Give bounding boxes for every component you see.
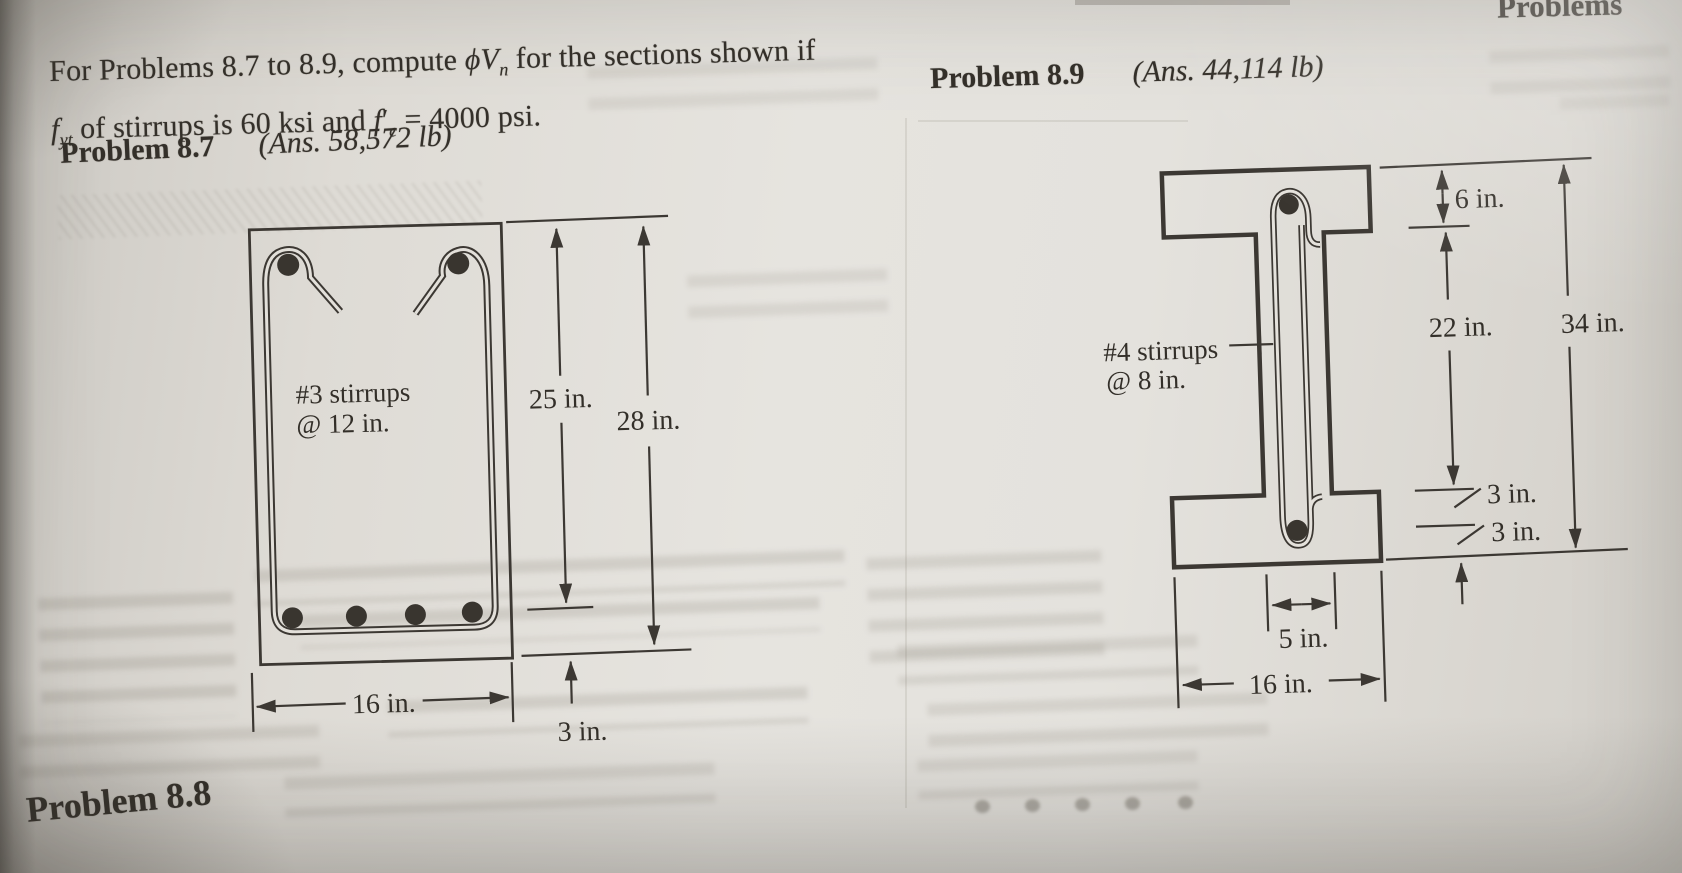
extension-line-top (506, 216, 668, 222)
extension-line-bar-level (1416, 525, 1475, 527)
dim-label-6in: 6 in. (1454, 183, 1505, 216)
extension-line-bottom (521, 649, 691, 655)
bottom-bar (405, 604, 427, 626)
beam-section-8-9 (1162, 167, 1381, 567)
dim-34in-upper (1564, 165, 1568, 296)
stirrup-label-line2: @ 12 in. (296, 407, 390, 439)
running-header-label: Problems (1497, 0, 1623, 25)
extension-line-flange-left (1174, 577, 1178, 708)
bottom-bar (282, 607, 304, 629)
problem-8-8-heading-row: Problem 8.8 (24, 771, 212, 831)
dim-28in-upper (643, 227, 647, 396)
dim-22in-upper (1446, 233, 1448, 300)
dim-16in-left (1183, 683, 1234, 685)
dim-label-22in: 22 in. (1428, 311, 1493, 344)
bottom-bar (462, 601, 484, 623)
dim-22in-lower (1449, 351, 1453, 485)
figure-8-9-labels: #4 stirrups @ 8 in. 6 in. 22 in. 34 in. … (1098, 179, 1636, 705)
dim-25in-upper (556, 229, 560, 376)
phi-vn-symbol: ϕV (464, 42, 499, 76)
top-bar (277, 254, 300, 277)
extension-line-web-right (1334, 572, 1336, 629)
extension-line-flange-right (1381, 571, 1385, 702)
stirrup-label-line2: @ 8 in. (1106, 364, 1187, 396)
dim-label-25in: 25 in. (529, 383, 594, 416)
stirrup-label-line1: #3 stirrups (295, 377, 410, 410)
problem-8-8-label: Problem 8.8 (25, 772, 213, 830)
dim-label-28in: 28 in. (616, 405, 681, 438)
bleed-through-text (1489, 45, 1670, 97)
dimension-lines-8-7 (240, 216, 693, 732)
dim-28in-lower (649, 446, 654, 644)
extension-line-bottom-flange-top (1415, 489, 1474, 491)
dim-label-16in: 16 in. (1249, 668, 1314, 701)
problem-8-9-heading-row: Problem 8.9 (Ans. 44,114 lb) (930, 50, 1324, 96)
figure-problem-8-7: #3 stirrups @ 12 in. 25 in. 28 in. 3 in.… (218, 188, 733, 781)
bleed-through-text (917, 750, 1198, 800)
bleed-through-dot (975, 800, 990, 813)
stirrup-leader-tick (1260, 335, 1261, 354)
dim-16in-right (423, 697, 509, 700)
extension-line-bar-level (527, 607, 593, 610)
extension-line-right (512, 662, 514, 722)
dim-label-34in: 34 in. (1560, 307, 1625, 340)
stirrup-label-line1: #4 stirrups (1103, 334, 1219, 368)
figure-problem-8-9: #4 stirrups @ 8 in. 6 in. 22 in. 34 in. … (1011, 130, 1669, 735)
stirrup-leader-line (1229, 344, 1273, 345)
dim-34in-lower (1569, 347, 1575, 548)
dim-16in-right (1329, 679, 1380, 681)
dim-16in-left (257, 703, 346, 706)
dim-6in-upper (1442, 171, 1443, 194)
intro-line1-text: For Problems 8.7 to 8.9, compute (49, 43, 466, 88)
dim-5in-left (1272, 604, 1301, 605)
bleed-through-text (38, 592, 237, 724)
dim-label-3in-upper: 3 in. (1487, 478, 1538, 511)
running-header: Problems (1497, 0, 1623, 26)
beam-section-8-7 (249, 223, 512, 664)
bottom-bar (346, 605, 368, 627)
bleed-through-text (1560, 94, 1671, 128)
problem-8-7-label: Problem 8.7 (59, 130, 215, 170)
bleed-through-dot (1125, 797, 1140, 810)
extension-line-flange-bottom (1409, 226, 1470, 228)
bleed-through-dot (1025, 799, 1040, 812)
leader-slash-3in-upper (1454, 489, 1482, 508)
dim-25in-lower (561, 423, 566, 603)
bleed-through-dot (1178, 796, 1193, 809)
textbook-page-photo: Problems For Problems 8.7 to 8.9, comput… (0, 0, 1682, 873)
dim-3in-arrow (1461, 563, 1462, 604)
dim-label-5in: 5 in. (1278, 622, 1329, 655)
dim-label-16in: 16 in. (351, 688, 416, 721)
bleed-through-rule (905, 118, 907, 808)
problem-8-9-answer: (Ans. 44,114 lb) (1132, 50, 1324, 89)
concrete-outline (249, 223, 512, 664)
dim-label-3in: 3 in. (557, 716, 608, 748)
extension-line-web-left (1266, 574, 1268, 631)
intro-line1-suffix: for the sections shown if (508, 34, 816, 76)
extension-line-left (252, 673, 254, 732)
problem-8-9-label: Problem 8.9 (930, 57, 1085, 95)
page-edge-artifact (1075, 0, 1290, 5)
dim-3in-arrow (571, 662, 572, 704)
dim-5in-right (1301, 603, 1330, 604)
extension-line-bottom (1386, 549, 1628, 560)
dim-label-3in-lower: 3 in. (1491, 516, 1542, 549)
dim-6in-lower (1443, 194, 1444, 223)
extension-line-top (1380, 158, 1592, 168)
leader-slash-3in-lower (1457, 526, 1485, 545)
bleed-through-dot (1075, 798, 1090, 811)
dimension-lines-8-9 (1162, 157, 1633, 708)
bleed-through-rule (918, 120, 1188, 122)
